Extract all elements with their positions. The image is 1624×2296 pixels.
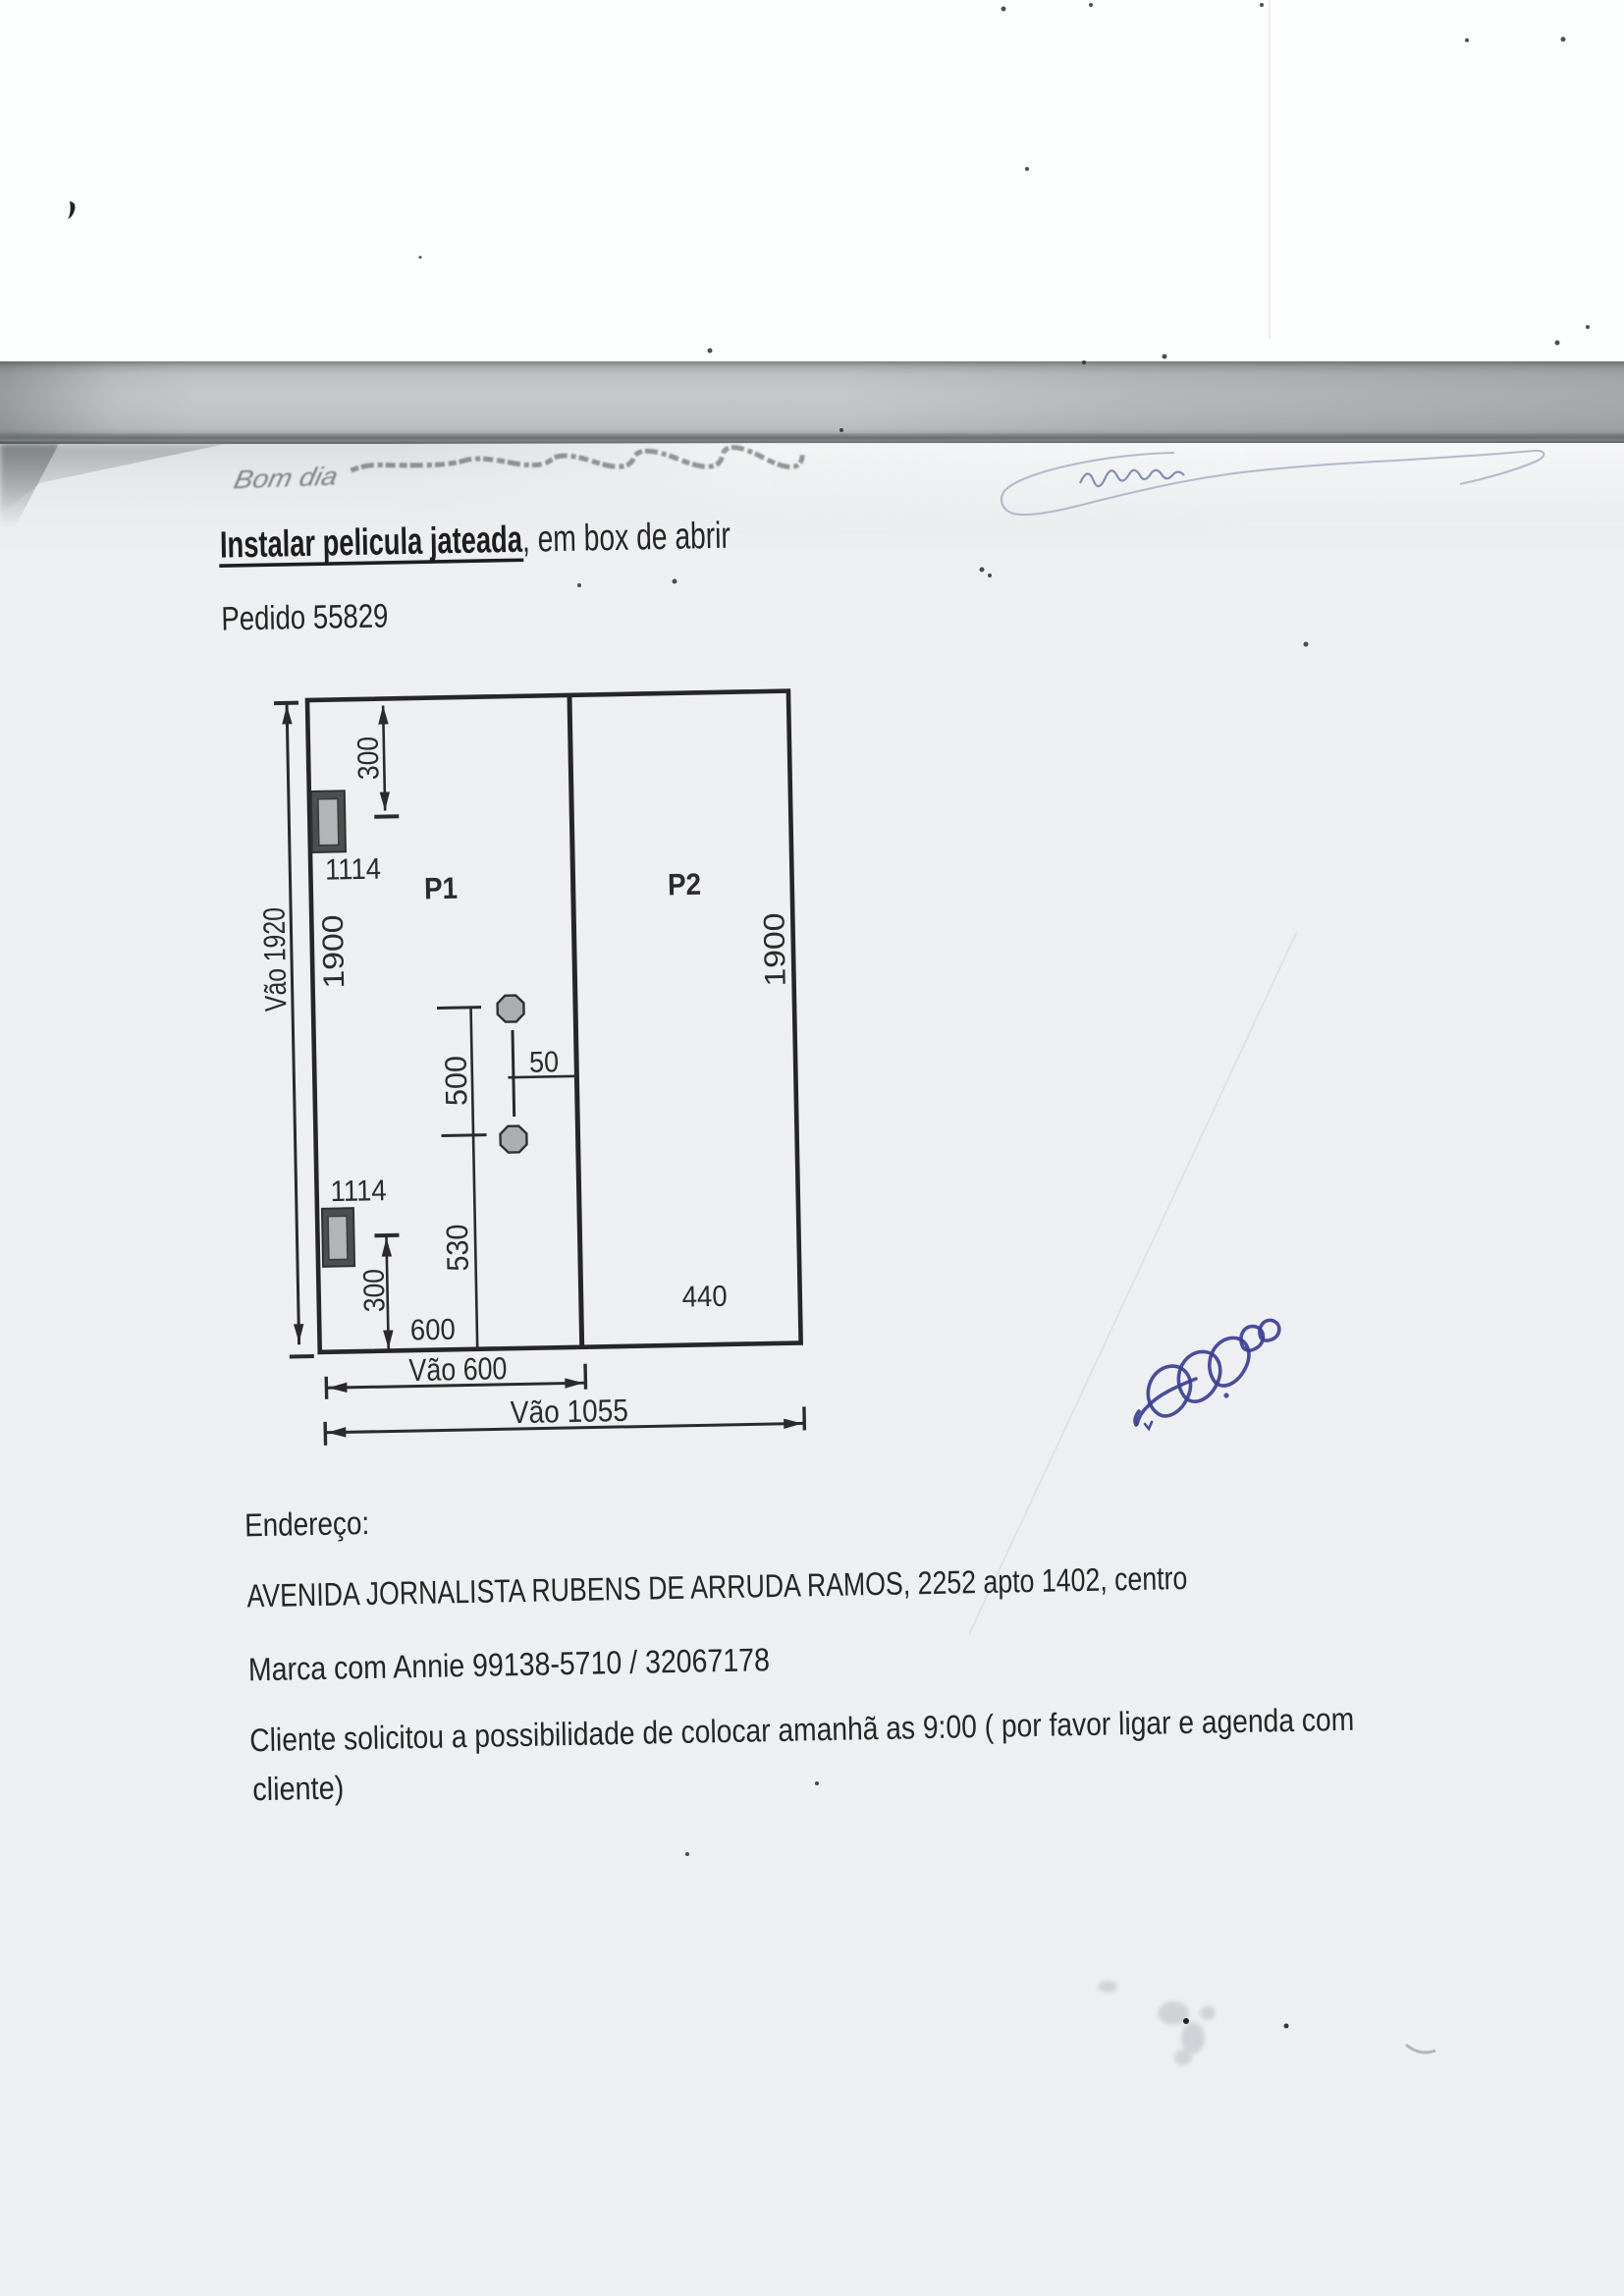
svg-text:Vão 1055: Vão 1055 (511, 1393, 629, 1430)
svg-text:, em box de abrir: , em box de abrir (522, 516, 731, 561)
svg-text:AVENIDA JORNALISTA RUBENS DE A: AVENIDA JORNALISTA RUBENS DE ARRUDA RAMO… (246, 1559, 1188, 1613)
svg-text:Marca com Annie 99138-5710 / 3: Marca com Annie 99138-5710 / 32067178 (248, 1641, 771, 1687)
svg-text:Cliente solicitou a possibilid: Cliente solicitou a possibilidade de col… (249, 1701, 1355, 1759)
svg-text:300: 300 (358, 1269, 392, 1313)
svg-text:1900: 1900 (317, 914, 351, 989)
svg-text:Pedido 55829: Pedido 55829 (221, 597, 389, 637)
svg-text:Bom dia: Bom dia (232, 462, 341, 495)
svg-text:P1: P1 (424, 871, 459, 906)
svg-text:600: 600 (410, 1314, 457, 1347)
svg-text:50: 50 (529, 1046, 560, 1079)
svg-text:Vão 1920: Vão 1920 (256, 907, 293, 1012)
svg-text:1114: 1114 (325, 853, 382, 887)
svg-text:1900: 1900 (758, 912, 791, 987)
svg-text:440: 440 (681, 1281, 728, 1314)
svg-text:500: 500 (439, 1056, 474, 1107)
svg-text:530: 530 (440, 1224, 475, 1272)
svg-text:300: 300 (352, 737, 386, 781)
svg-text:cliente): cliente) (252, 1769, 345, 1807)
svg-text:Endereço:: Endereço: (244, 1504, 370, 1543)
svg-text:P2: P2 (668, 867, 702, 902)
svg-text:1114: 1114 (330, 1175, 387, 1208)
svg-text:Vão 600: Vão 600 (408, 1350, 508, 1388)
